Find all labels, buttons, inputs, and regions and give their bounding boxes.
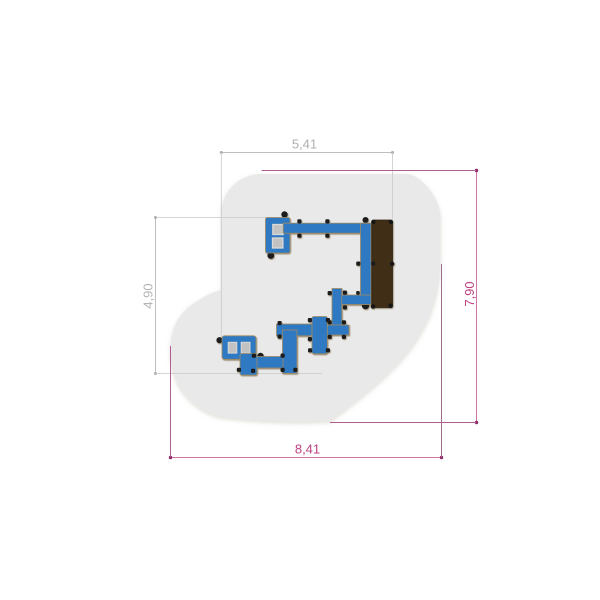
svg-text:8,41: 8,41: [295, 441, 320, 456]
svg-text:4,90: 4,90: [141, 283, 156, 308]
svg-text:5,41: 5,41: [292, 136, 317, 151]
svg-text:7,90: 7,90: [462, 281, 477, 306]
